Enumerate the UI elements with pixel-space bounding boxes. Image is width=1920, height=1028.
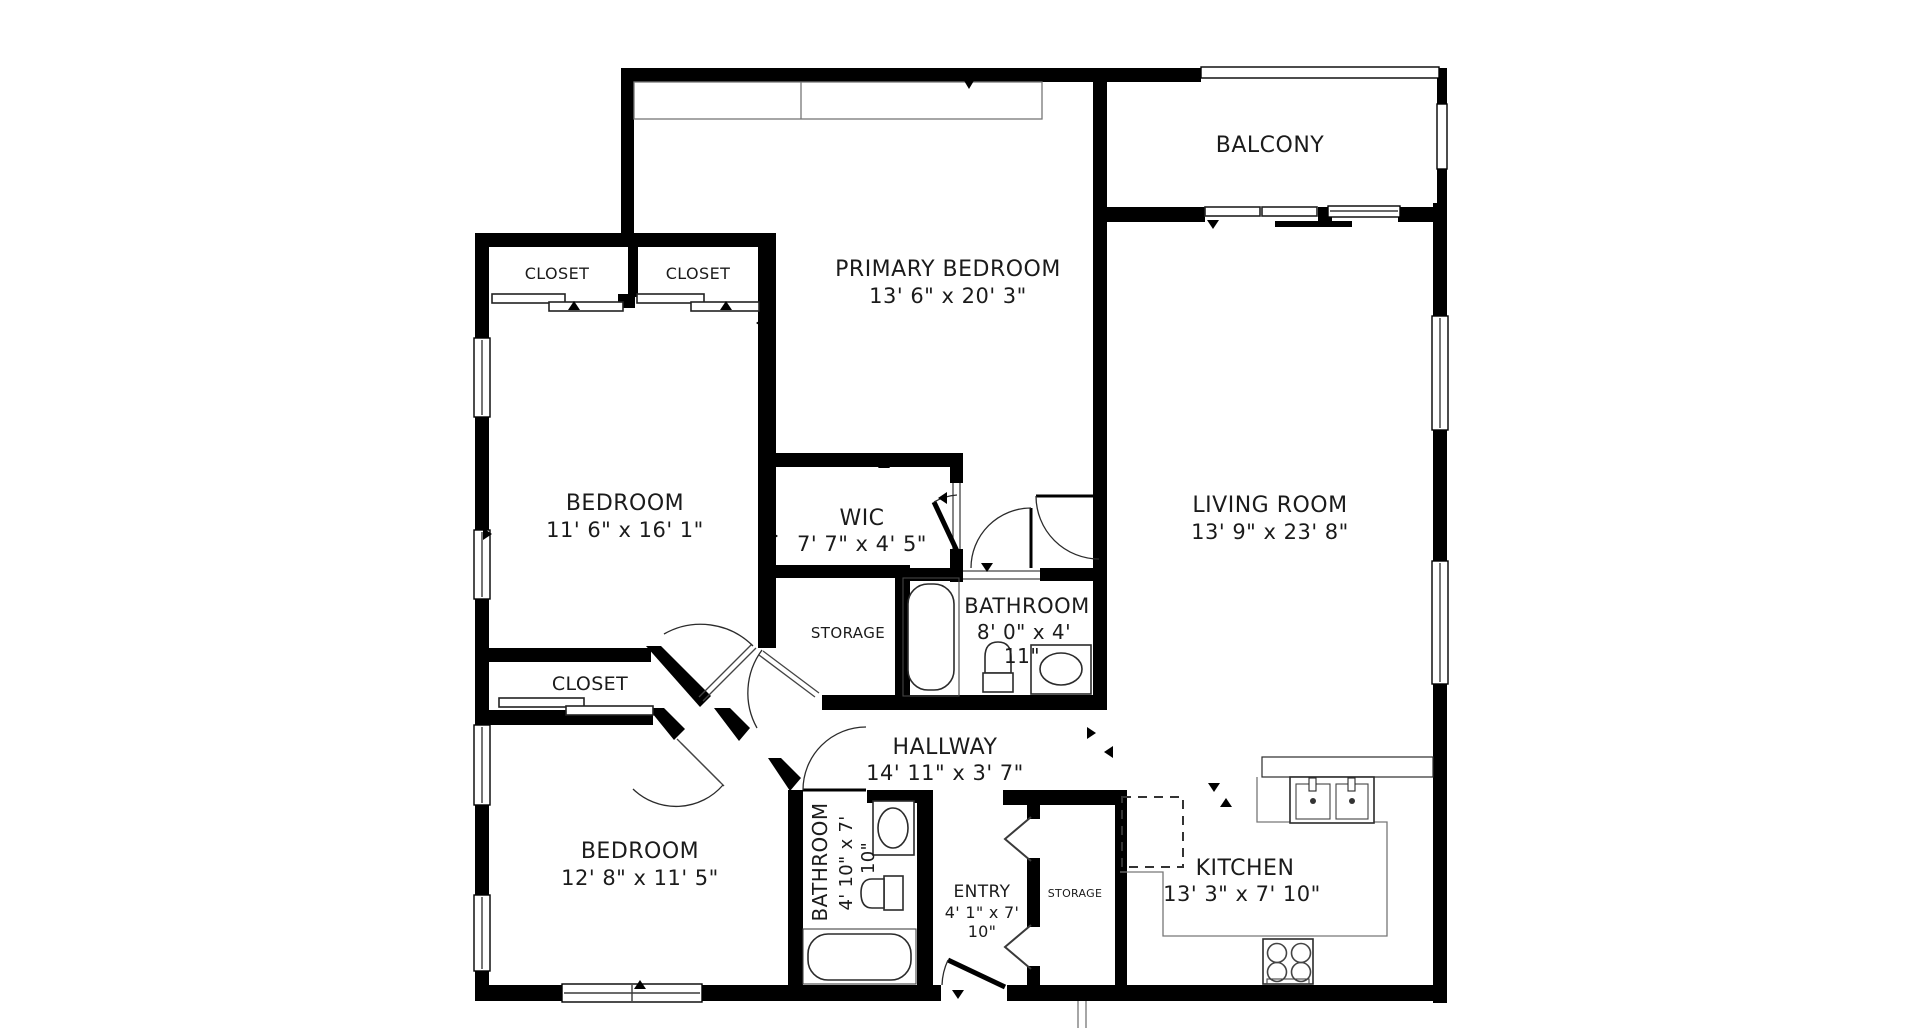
label-balcony: BALCONY	[1216, 133, 1325, 158]
wall	[788, 790, 803, 986]
label-storage-entry: STORAGE	[1048, 887, 1102, 900]
label-primary-bedroom: PRIMARY BEDROOM	[835, 257, 1061, 282]
balcony-rail	[1201, 67, 1439, 78]
label-living-room: LIVING ROOM	[1192, 493, 1347, 518]
dims-bedroom-lower: 12' 8" x 11' 5"	[561, 866, 719, 890]
label-bedroom-upper: BEDROOM	[566, 491, 684, 516]
wall	[1093, 70, 1107, 710]
dims-primary-bedroom: 13' 6" x 20' 3"	[869, 284, 1027, 308]
kitchen-counter	[1262, 757, 1433, 777]
balcony-rail	[1437, 104, 1447, 169]
dims-kitchen: 13' 3" x 7' 10"	[1163, 882, 1321, 906]
sink	[878, 808, 908, 848]
wall	[1107, 207, 1205, 222]
label-wic: WIC	[839, 506, 884, 531]
dims-primary-bathroom-1: 8' 0" x 4'	[977, 620, 1071, 644]
sink-drain	[1349, 798, 1355, 804]
sink	[1040, 653, 1082, 685]
wall	[1027, 966, 1040, 986]
toilet-tank	[884, 876, 903, 910]
dims-hall-bathroom-1: 4' 10" x 7'	[836, 815, 857, 910]
wall	[770, 565, 898, 578]
sliding-door-panel	[549, 302, 623, 311]
bathtub	[908, 584, 954, 690]
label-bedroom-lower: BEDROOM	[581, 839, 699, 864]
wall	[950, 467, 963, 483]
wall	[1003, 790, 1127, 805]
wall	[1027, 858, 1040, 927]
sliding-door-panel	[566, 706, 653, 715]
dims-entry-1: 4' 1" x 7'	[945, 903, 1019, 922]
bathtub	[808, 934, 911, 980]
dims-entry-2: 10"	[968, 922, 997, 941]
label-closet-primary-left: CLOSET	[525, 264, 590, 283]
wall	[1040, 568, 1095, 581]
sliding-door-panel	[1205, 207, 1260, 216]
sliding-door-panel	[1262, 207, 1317, 216]
wall	[1027, 805, 1040, 819]
wall	[1115, 790, 1127, 986]
wall	[1437, 167, 1447, 207]
dims-wic: 7' 7" x 4' 5"	[797, 532, 927, 556]
dims-bedroom-upper: 11' 6" x 16' 1"	[546, 518, 704, 542]
toilet-tank	[983, 673, 1013, 692]
wall	[758, 233, 776, 648]
toilet	[861, 879, 884, 908]
sink-drain	[1310, 798, 1316, 804]
label-hallway: HALLWAY	[893, 735, 998, 760]
label-closet-bedroom: CLOSET	[552, 673, 628, 695]
floorplan-canvas: CLOSET CLOSET PRIMARY BEDROOM 13' 6" x 2…	[0, 0, 1920, 1028]
wall	[628, 247, 638, 297]
wall	[917, 790, 933, 986]
wall	[910, 568, 963, 581]
wall	[822, 695, 1107, 710]
label-entry: ENTRY	[954, 882, 1011, 902]
dims-primary-bathroom-2: 11"	[1004, 644, 1040, 668]
label-primary-bathroom: BATHROOM	[964, 594, 1090, 618]
wall	[1398, 207, 1435, 222]
label-hall-bathroom: BATHROOM	[808, 803, 832, 922]
label-kitchen: KITCHEN	[1196, 856, 1295, 881]
wall	[621, 68, 1201, 82]
dims-hall-bathroom-2: 10"	[858, 842, 879, 874]
label-storage-hall: STORAGE	[811, 624, 885, 642]
label-closet-primary-right: CLOSET	[666, 264, 731, 283]
wall	[475, 648, 651, 662]
door-opening	[941, 984, 1007, 1002]
dims-living-room: 13' 9" x 23' 8"	[1191, 520, 1349, 544]
wall	[758, 453, 963, 467]
wall	[621, 70, 634, 247]
wall	[1275, 221, 1352, 227]
dims-hallway: 14' 11" x 3' 7"	[866, 761, 1024, 785]
